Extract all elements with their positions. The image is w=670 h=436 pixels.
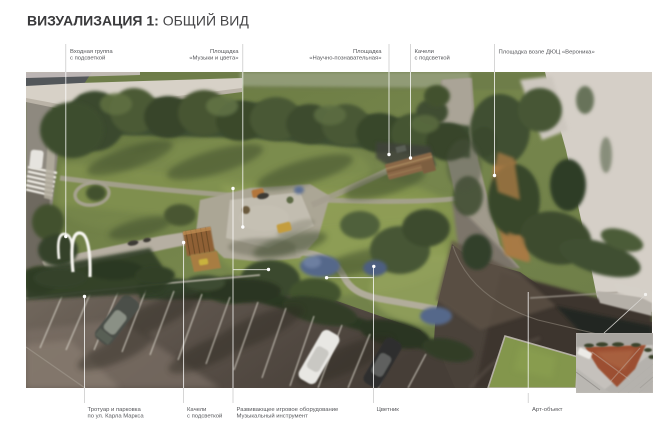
svg-text:Тротуар и парковка: Тротуар и парковка — [88, 407, 142, 413]
svg-text:Музыкальный инструмент: Музыкальный инструмент — [237, 413, 309, 420]
svg-text:с подсветкой: с подсветкой — [415, 55, 450, 62]
svg-text:Качели: Качели — [187, 407, 206, 413]
svg-text:Качели: Качели — [415, 49, 434, 55]
svg-text:с подсветкой: с подсветкой — [187, 413, 222, 420]
svg-text:Входная группа: Входная группа — [70, 49, 113, 55]
svg-text:по ул. Карла Маркса: по ул. Карла Маркса — [88, 414, 145, 420]
svg-text:«Музыки и цвета»: «Музыки и цвета» — [189, 56, 239, 62]
svg-text:Площадка: Площадка — [353, 49, 382, 55]
svg-text:ВИЗУАЛИЗАЦИЯ 1: ОБЩИЙ ВИД: ВИЗУАЛИЗАЦИЯ 1: ОБЩИЙ ВИД — [27, 12, 249, 29]
svg-text:Развивающее игровое оборудован: Развивающее игровое оборудование — [237, 407, 340, 413]
svg-text:Площадка возле ДЮЦ «Вероника»: Площадка возле ДЮЦ «Вероника» — [499, 50, 596, 56]
svg-text:Цветник: Цветник — [377, 407, 400, 413]
svg-text:«Научно-познавательная»: «Научно-познавательная» — [309, 56, 382, 62]
svg-text:Арт-объект: Арт-объект — [532, 407, 563, 413]
svg-text:с подсветкой: с подсветкой — [70, 55, 105, 62]
svg-text:Площадка: Площадка — [210, 49, 239, 55]
